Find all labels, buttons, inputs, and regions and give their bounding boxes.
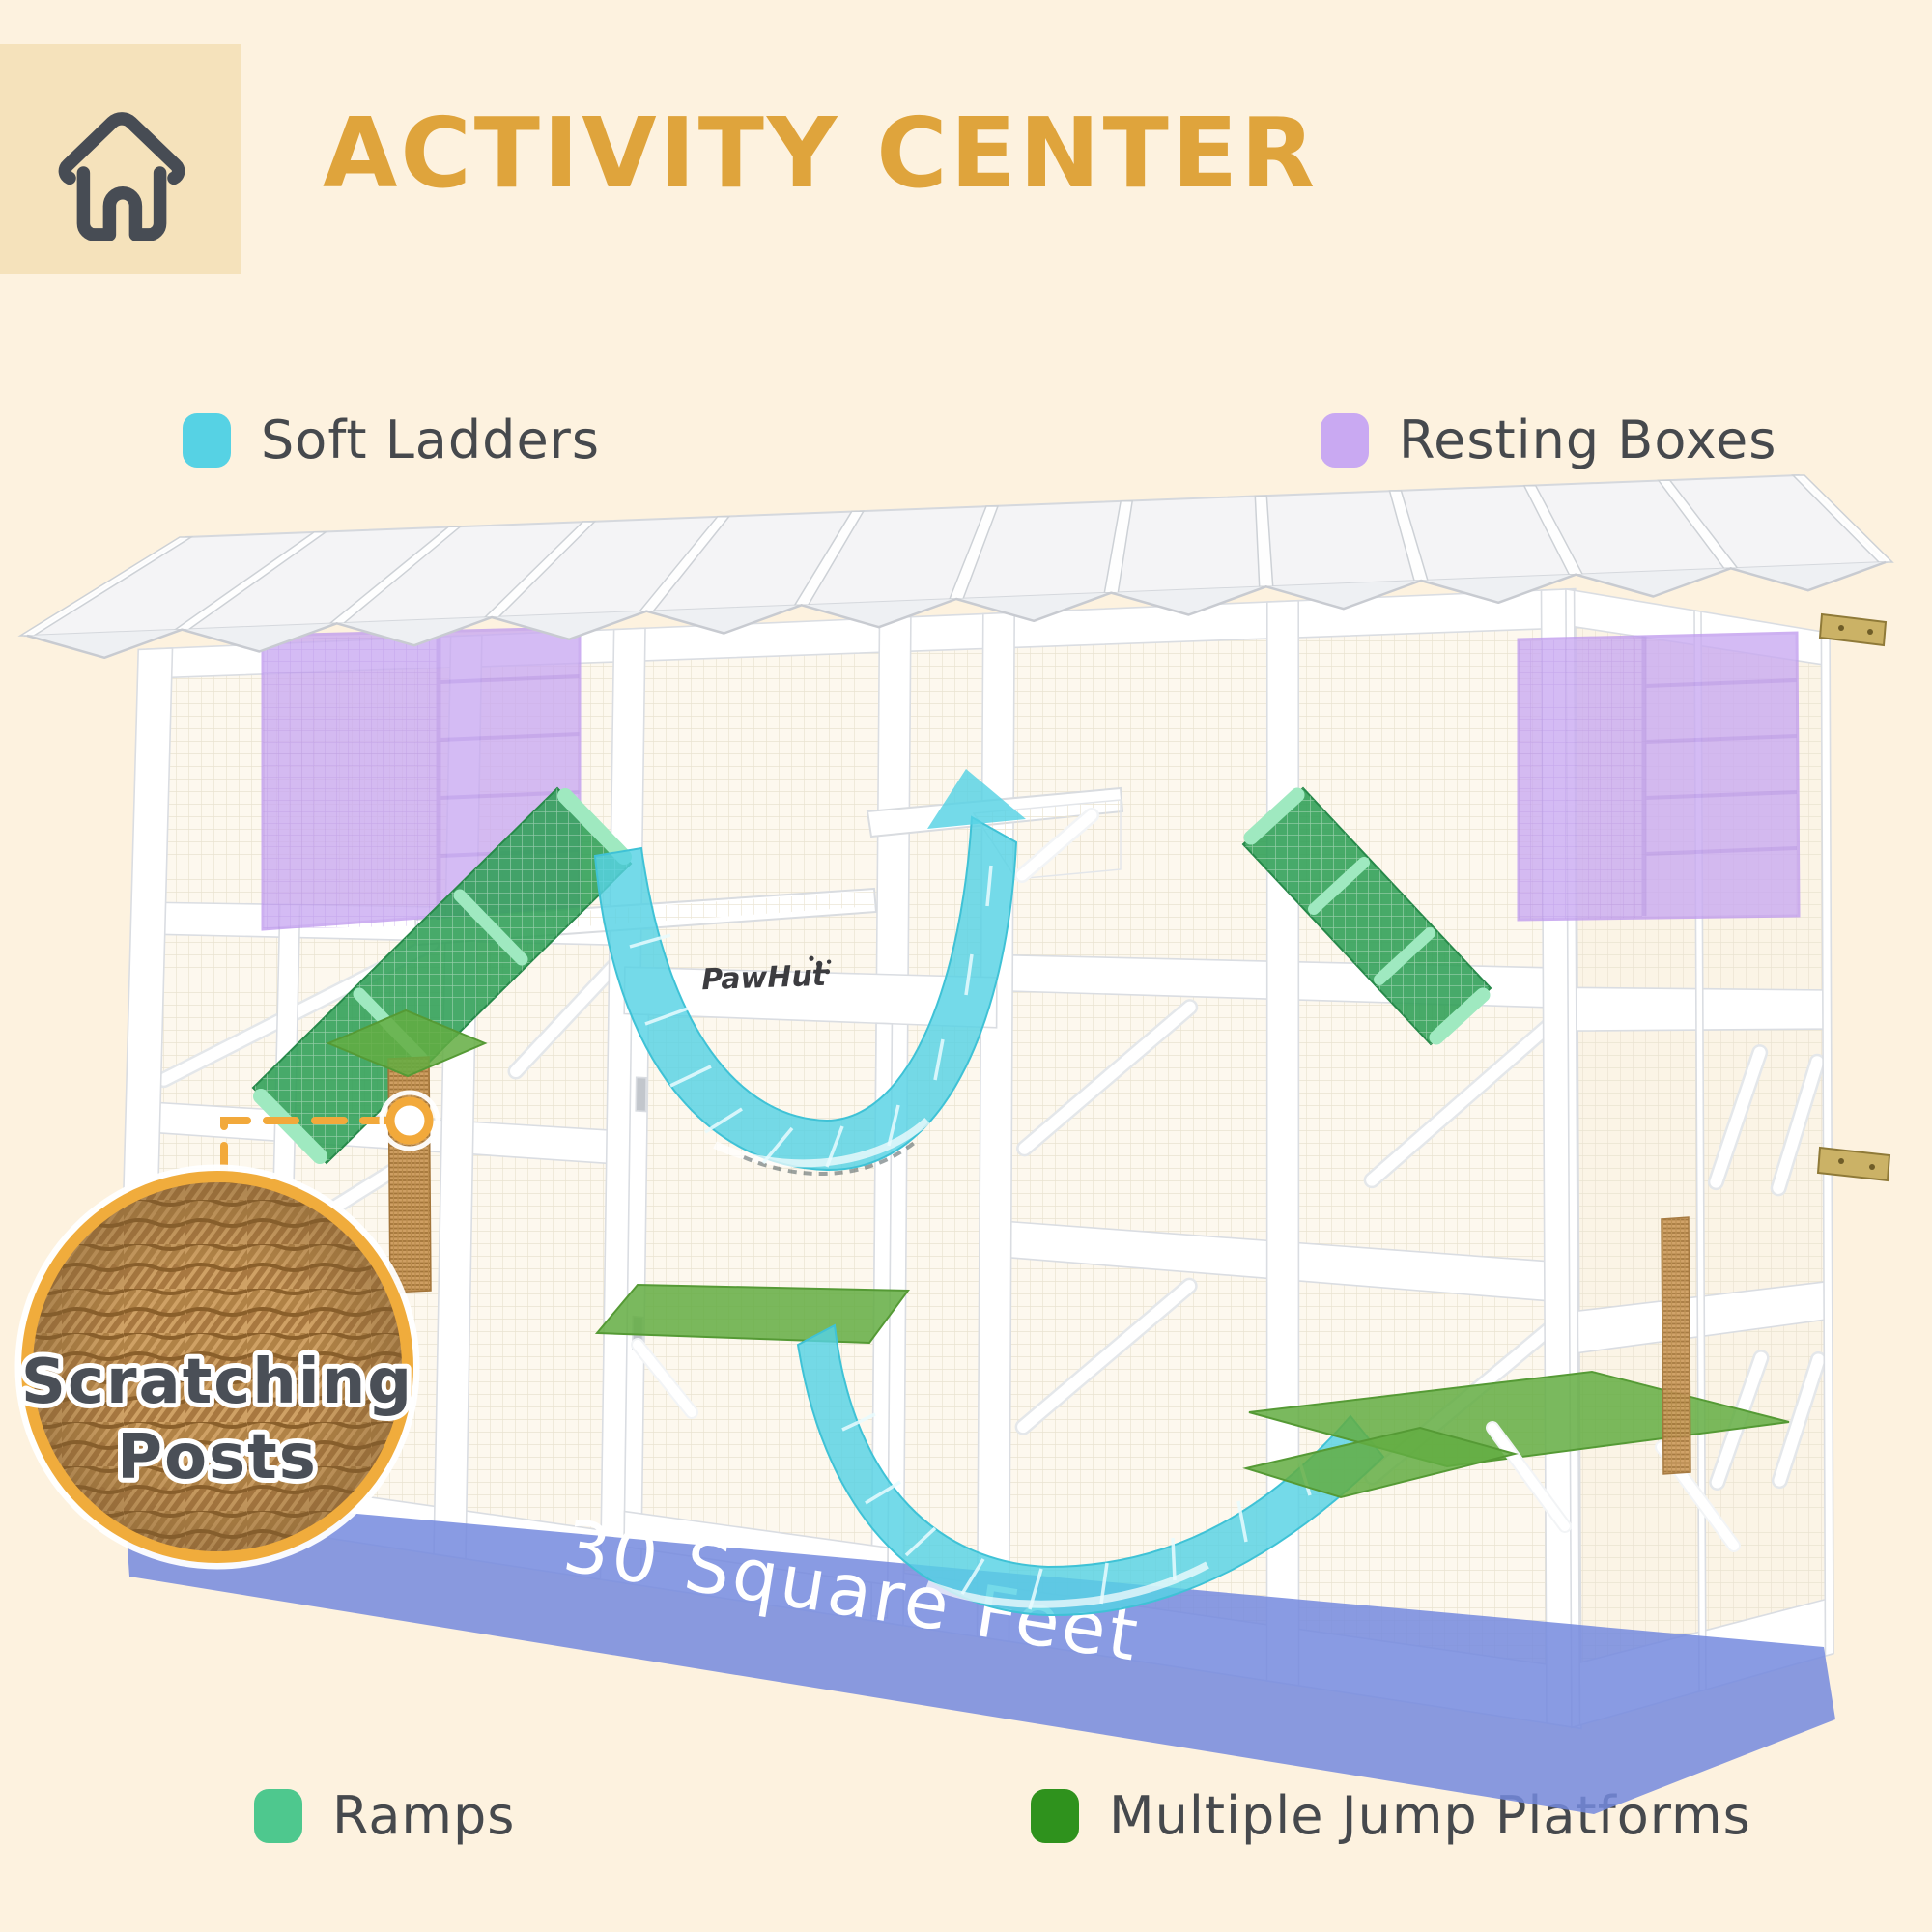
resting-box-right <box>1519 633 1799 920</box>
catio-illustration: 30 Square Feet <box>0 0 1932 1932</box>
callout-label-line2: Posts <box>117 1422 318 1493</box>
callout-label-line1: Scratching <box>21 1347 413 1418</box>
callout-circle: Scratching Posts <box>19 1169 415 1565</box>
scratching-post-right <box>1662 1217 1690 1474</box>
svg-text:PawHut: PawHut <box>701 959 829 998</box>
callout-pointer-dot <box>390 1101 429 1140</box>
infographic-page: ACTIVITY CENTER Soft Ladders Resting Box… <box>0 0 1932 1932</box>
